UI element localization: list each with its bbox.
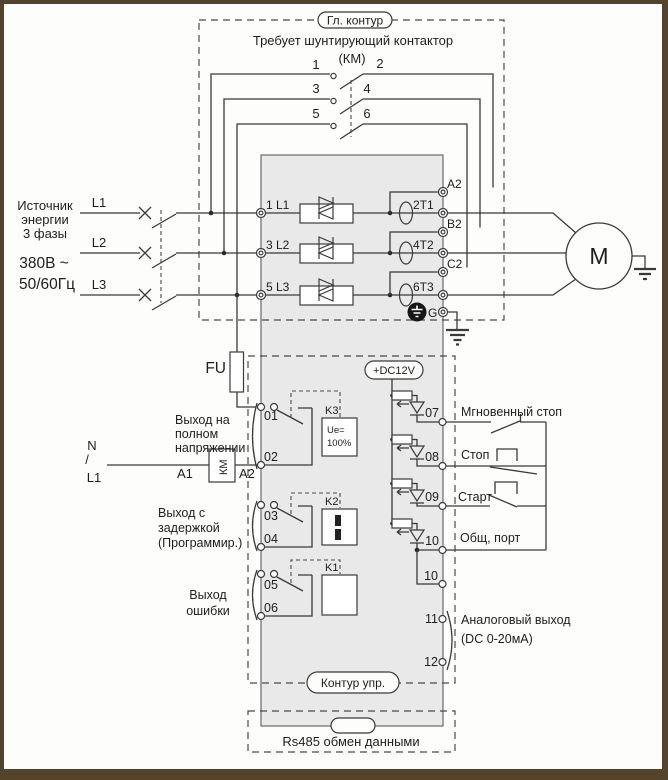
contact-number-5: 5 [312, 106, 319, 121]
label-b2: B2 [447, 217, 462, 231]
control-circuit-label: Контур упр. [321, 676, 385, 690]
contact-05-pivot [271, 571, 278, 578]
label-01: 01 [264, 409, 278, 423]
terminal-10b [439, 581, 446, 588]
fuse-label: FU [205, 360, 226, 377]
frame-left [0, 0, 4, 780]
terminal-03 [258, 502, 265, 509]
junction-dot [209, 211, 214, 216]
fault-line2: ошибки [186, 604, 230, 618]
contact3-pivot [331, 98, 336, 103]
terminal-5l3 [257, 291, 266, 300]
analog-out-line2: (DC 0-20мА) [461, 632, 533, 646]
contact-number-6: 6 [363, 106, 370, 121]
k3-value-2: 100% [327, 438, 352, 449]
supply-l1-label: L1 [87, 470, 101, 485]
phase-l2-label: L2 [92, 235, 106, 250]
junction-dot [222, 251, 227, 256]
motor-label: M [589, 243, 608, 269]
terminal-08 [439, 463, 446, 470]
label-a2: A2 [447, 177, 462, 191]
dc12v-label: +DC12V [373, 365, 416, 377]
contact1-pivot [331, 73, 336, 78]
label-10: 10 [425, 534, 439, 548]
label-g: G [428, 306, 437, 320]
source-line3: 3 фазы [23, 226, 67, 241]
wiring-diagram-page: M FU K3 Ue= 100% КМ A1 A2 N / L1 [0, 0, 668, 780]
opto-resistor [392, 435, 412, 444]
terminal-3l2 [257, 249, 266, 258]
k3-label: K3 [325, 405, 338, 417]
k1-label: K1 [325, 562, 338, 574]
label-07: 07 [425, 406, 439, 420]
phase-l1-label: L1 [92, 195, 106, 210]
contact-number-3: 3 [312, 81, 319, 96]
terminal-09 [439, 503, 446, 510]
terminal-g [439, 308, 448, 317]
supply-slash: / [85, 452, 89, 467]
opto-resistor [392, 479, 412, 488]
full-voltage-line2: полном [175, 427, 218, 441]
label-3l2: 3 L2 [266, 238, 290, 252]
label-c2: C2 [447, 257, 463, 271]
pe-mark-icon [408, 303, 427, 322]
k3-value-1: Ue= [327, 425, 345, 436]
label-08: 08 [425, 450, 439, 464]
start-label: Старт [458, 490, 492, 504]
km-coil-label: КМ [218, 459, 230, 475]
frame-top [0, 0, 668, 4]
label-4t2: 4T2 [413, 238, 434, 252]
analog-out-line1: Аналоговый выход [461, 613, 571, 627]
label-12: 12 [424, 655, 438, 669]
km-a2-label: A2 [239, 466, 255, 481]
label-09: 09 [425, 490, 439, 504]
terminal-11 [439, 616, 446, 623]
frame-bottom [0, 769, 668, 780]
label-10b: 10 [424, 569, 438, 583]
contact-03-pivot [271, 502, 278, 509]
label-2t1: 2T1 [413, 198, 434, 212]
label-02: 02 [264, 450, 278, 464]
label-1l1: 1 L1 [266, 198, 290, 212]
voltage-label: 380В ~ [19, 255, 69, 272]
terminal-6t3 [439, 291, 448, 300]
k2-label: K2 [325, 496, 338, 508]
label-6t3: 6T3 [413, 280, 434, 294]
terminal-10 [439, 547, 446, 554]
source-line2: энергии [21, 212, 69, 227]
supply-n-label: N [87, 438, 96, 453]
fuse-icon [230, 352, 244, 392]
terminal-1l1 [257, 209, 266, 218]
full-voltage-line3: напряжении [175, 441, 245, 455]
k1-relay-box [322, 575, 357, 615]
terminal-07 [439, 419, 446, 426]
rs485-label: Rs485 обмен данными [282, 734, 419, 749]
terminal-05 [258, 571, 265, 578]
main-circuit-label: Гл. контур [327, 14, 384, 28]
label-04: 04 [264, 532, 278, 546]
delayed-line2: задержкой [158, 521, 220, 535]
fault-line1: Выход [189, 588, 227, 602]
stop-label: Стоп [461, 448, 489, 462]
contact-number-4: 4 [363, 81, 370, 96]
opto-resistor [392, 519, 412, 528]
contactor-note-km: (КМ) [338, 51, 365, 66]
delayed-line1: Выход с [158, 506, 205, 520]
rs485-connector [331, 718, 375, 733]
delayed-line3: (Программир.) [158, 536, 242, 550]
terminal-12 [439, 659, 446, 666]
km-a1-label: A1 [177, 466, 193, 481]
soft-starter-wiring-diagram: M FU K3 Ue= 100% КМ A1 A2 N / L1 [0, 0, 668, 780]
common-port-label: Общ, порт [460, 531, 521, 545]
source-line1: Источник [17, 198, 73, 213]
thyristor-module-2 [300, 244, 353, 263]
k3-relay-box [322, 418, 357, 456]
k2-bar-icon [335, 529, 341, 540]
full-voltage-line1: Выход на [175, 413, 230, 427]
thyristor-module-3 [300, 286, 353, 305]
label-5l3: 5 L3 [266, 280, 290, 294]
instant-stop-label: Мгновенный стоп [461, 405, 562, 419]
phase-l3-label: L3 [92, 277, 106, 292]
contact-number-1: 1 [312, 57, 319, 72]
thyristor-module-1 [300, 204, 353, 223]
contactor-note: Требует шунтирующий контактор [253, 33, 453, 48]
contact-number-2: 2 [376, 56, 383, 71]
label-03: 03 [264, 509, 278, 523]
k2-bar-icon [335, 515, 341, 526]
frequency-label: 50/60Гц [19, 276, 75, 293]
opto-resistor [392, 391, 412, 400]
label-05: 05 [264, 578, 278, 592]
control-circuit-tag: Контур упр. [307, 672, 399, 693]
label-11: 11 [425, 612, 438, 626]
contact5-pivot [331, 123, 336, 128]
label-06: 06 [264, 601, 278, 615]
frame-right [662, 0, 668, 780]
